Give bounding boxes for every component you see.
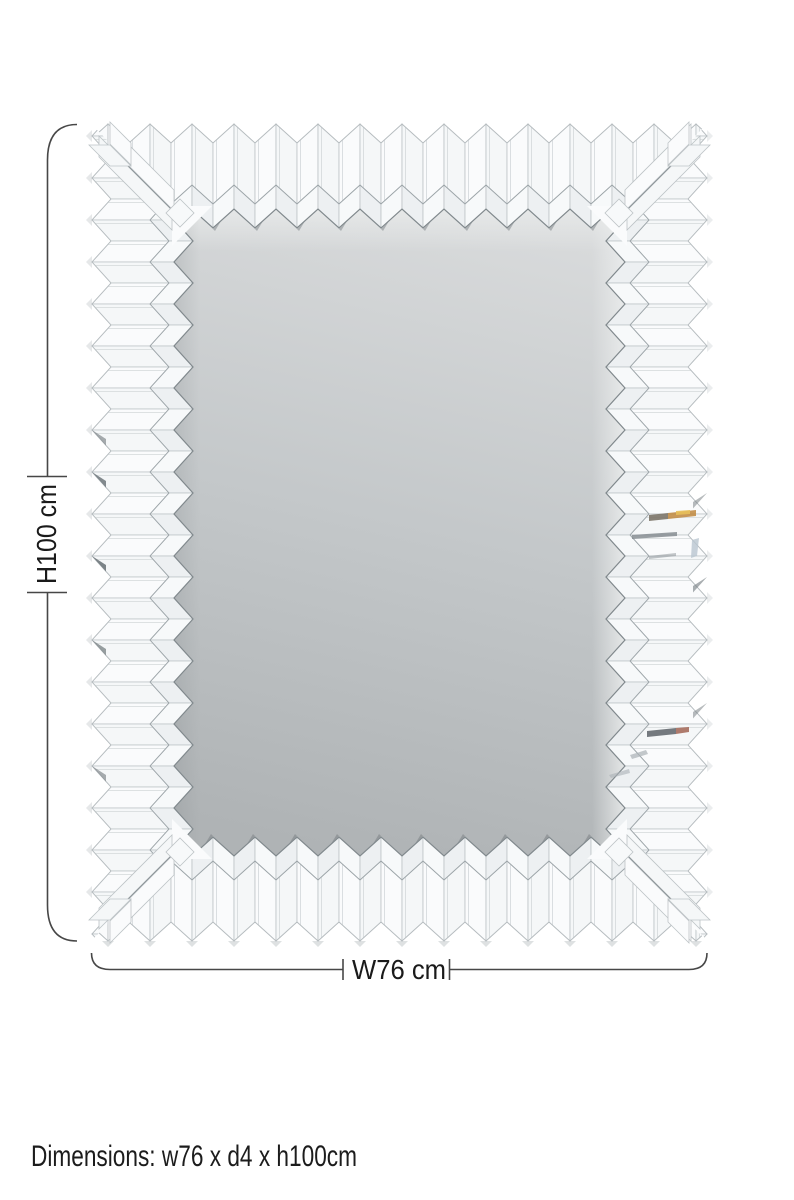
svg-text:H100 cm: H100 cm [31,484,62,584]
svg-text:W76 cm: W76 cm [352,954,446,985]
svg-text:Dimensions: w76 x d4 x h100cm: Dimensions: w76 x d4 x h100cm [31,1140,357,1173]
